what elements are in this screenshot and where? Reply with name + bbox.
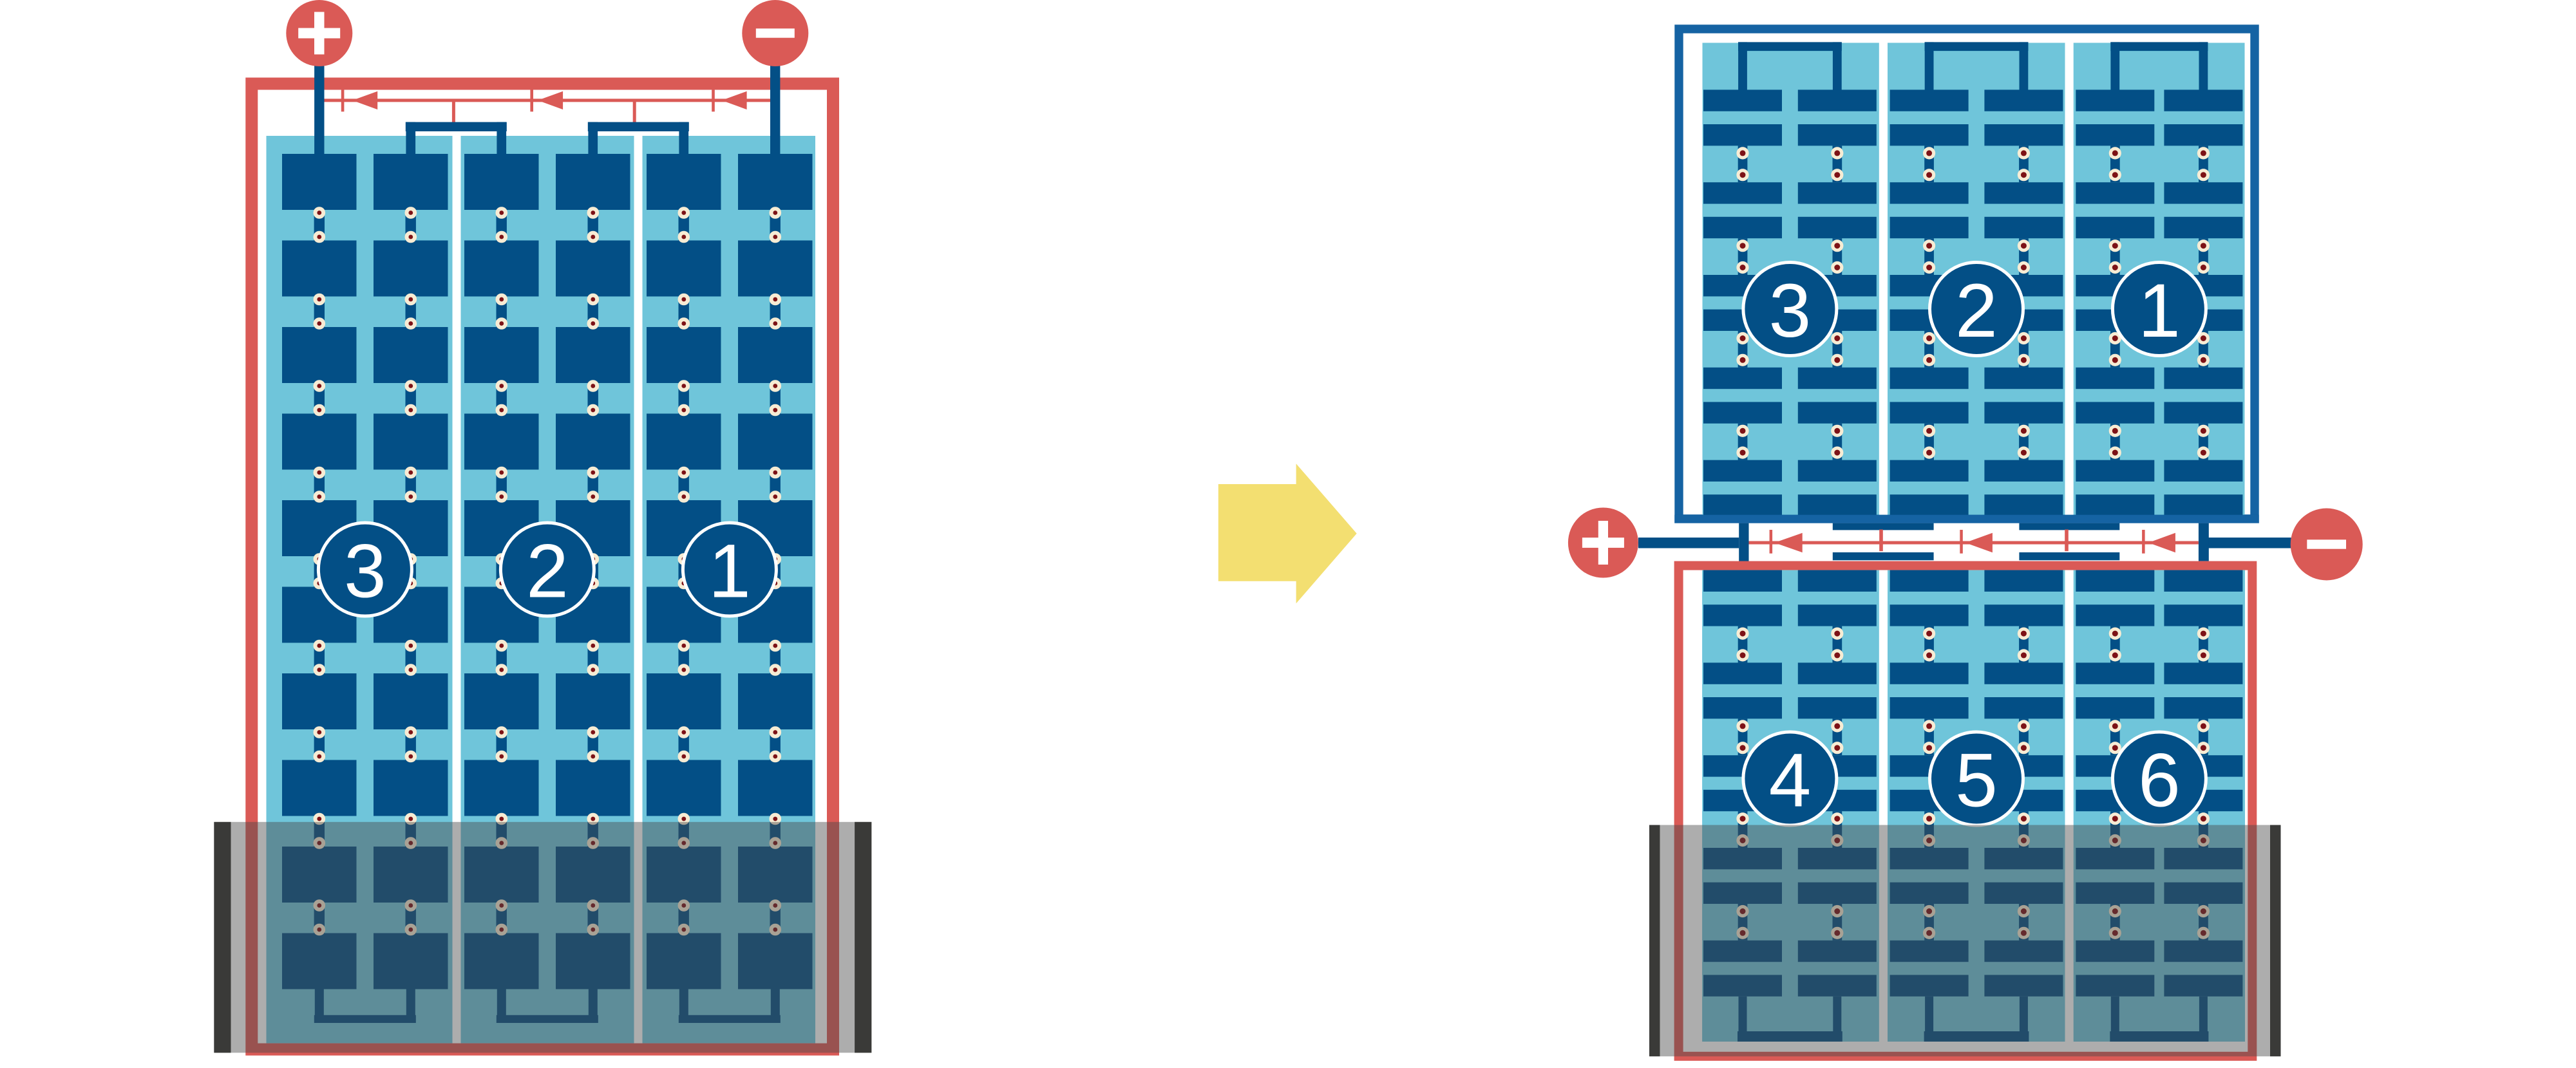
svg-text:1: 1: [708, 529, 751, 614]
svg-text:3: 3: [1769, 268, 1812, 353]
svg-text:2: 2: [1955, 268, 1998, 353]
svg-text:1: 1: [2138, 268, 2181, 353]
svg-text:3: 3: [344, 529, 386, 614]
svg-text:4: 4: [1769, 738, 1812, 823]
svg-text:2: 2: [526, 529, 569, 614]
svg-text:6: 6: [2138, 738, 2181, 823]
svg-text:5: 5: [1955, 738, 1998, 823]
